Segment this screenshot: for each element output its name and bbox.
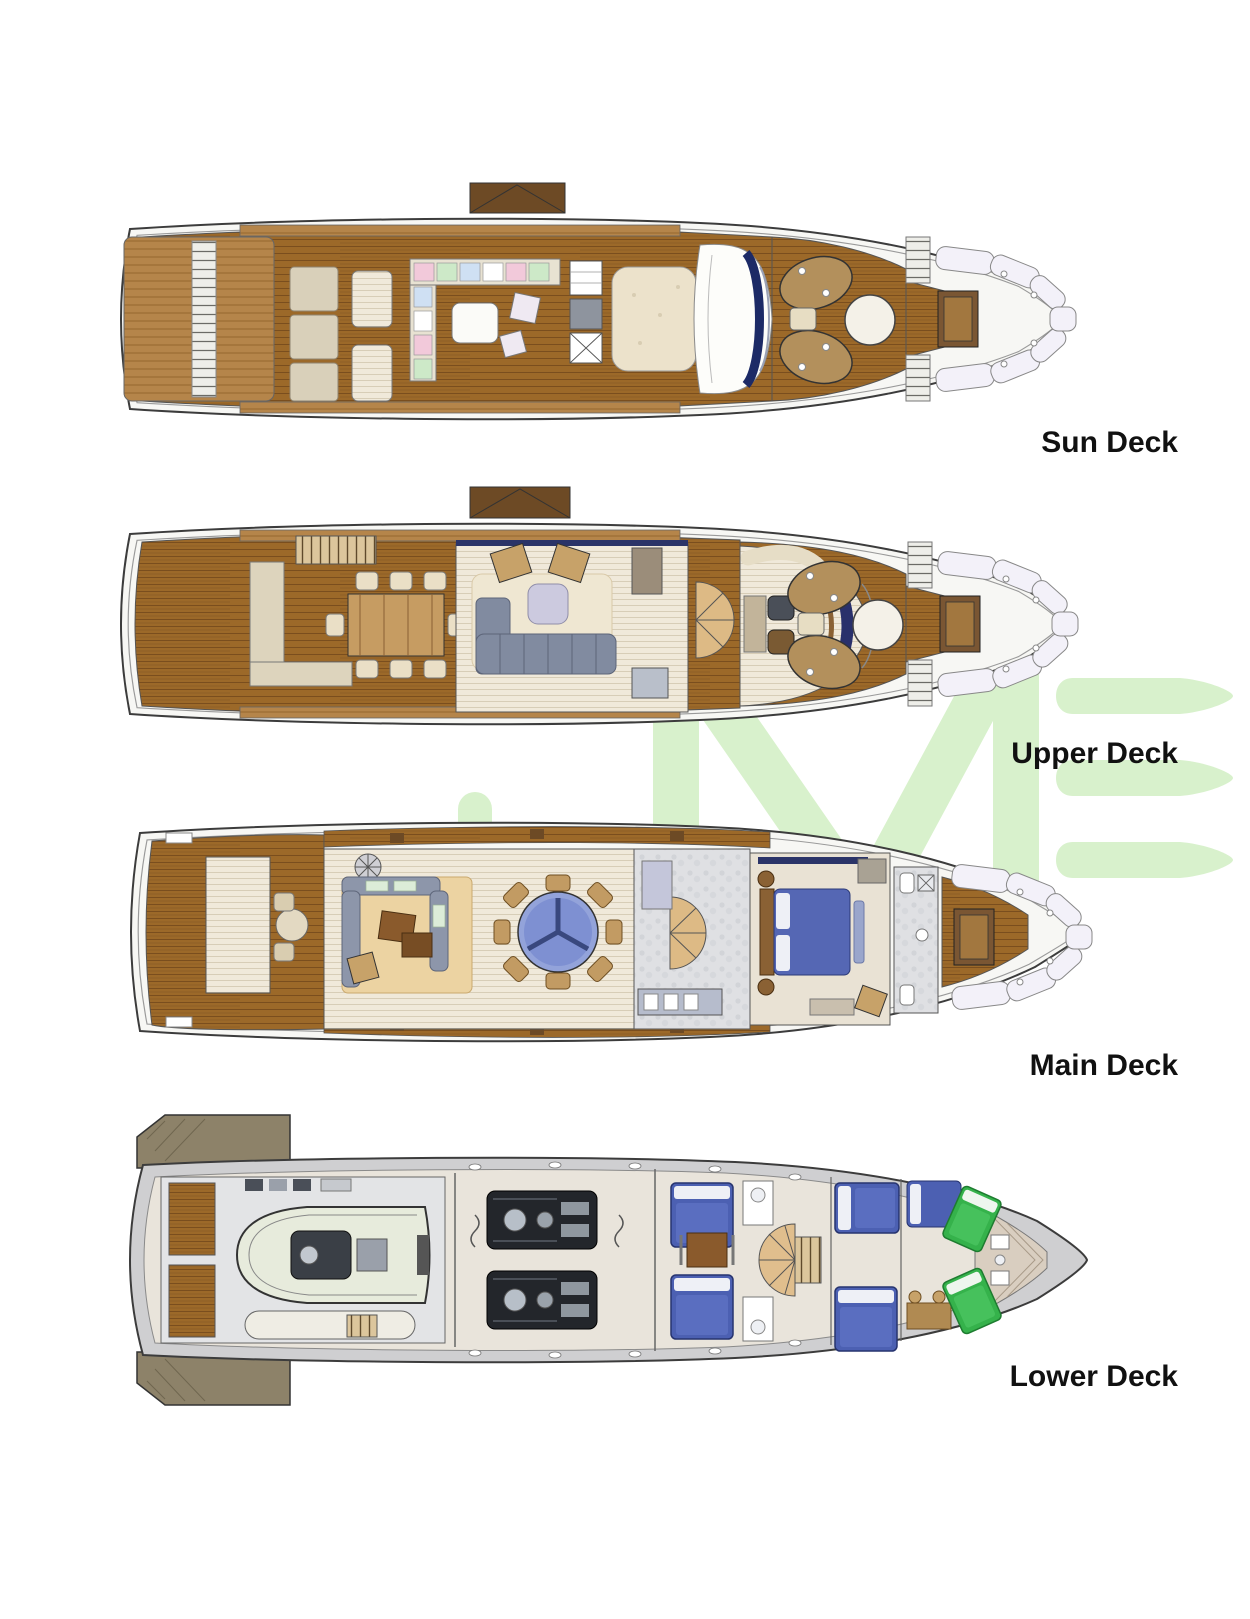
sun-deck-sun-bed [612,267,696,371]
owner-bathroom [894,867,938,1013]
salon [324,849,634,1029]
owner-stateroom [750,853,890,1025]
bow-ladder-port [908,542,932,588]
upper-deck-plan [100,478,1100,743]
sky-lounge [456,540,688,712]
bow-ladder-stbd [906,355,930,401]
lower-deck-label: Lower Deck [1010,1360,1178,1394]
sun-deck-glass-skylight [694,244,772,393]
main-foredeck [942,864,1092,1011]
upper-deck-label: Upper Deck [1011,737,1178,771]
bow-ladder-port [906,237,930,283]
sun-deck-stern-platform [124,237,274,401]
galley-lobby [634,849,750,1029]
bow-ladder-stbd [908,660,932,706]
main-deck-label: Main Deck [1030,1049,1178,1083]
upper-deck-mast [470,487,570,518]
lower-deck-plan [95,1065,1105,1425]
tender-garage [161,1177,445,1343]
deck-plan-page: Sun Deck Upper Deck Main Deck Lower Deck [0,0,1250,1619]
sun-deck-plan [100,175,1100,445]
sun-deck-label: Sun Deck [1041,426,1178,460]
main-deck-plan [110,805,1110,1055]
sun-deck-mast [470,183,565,213]
